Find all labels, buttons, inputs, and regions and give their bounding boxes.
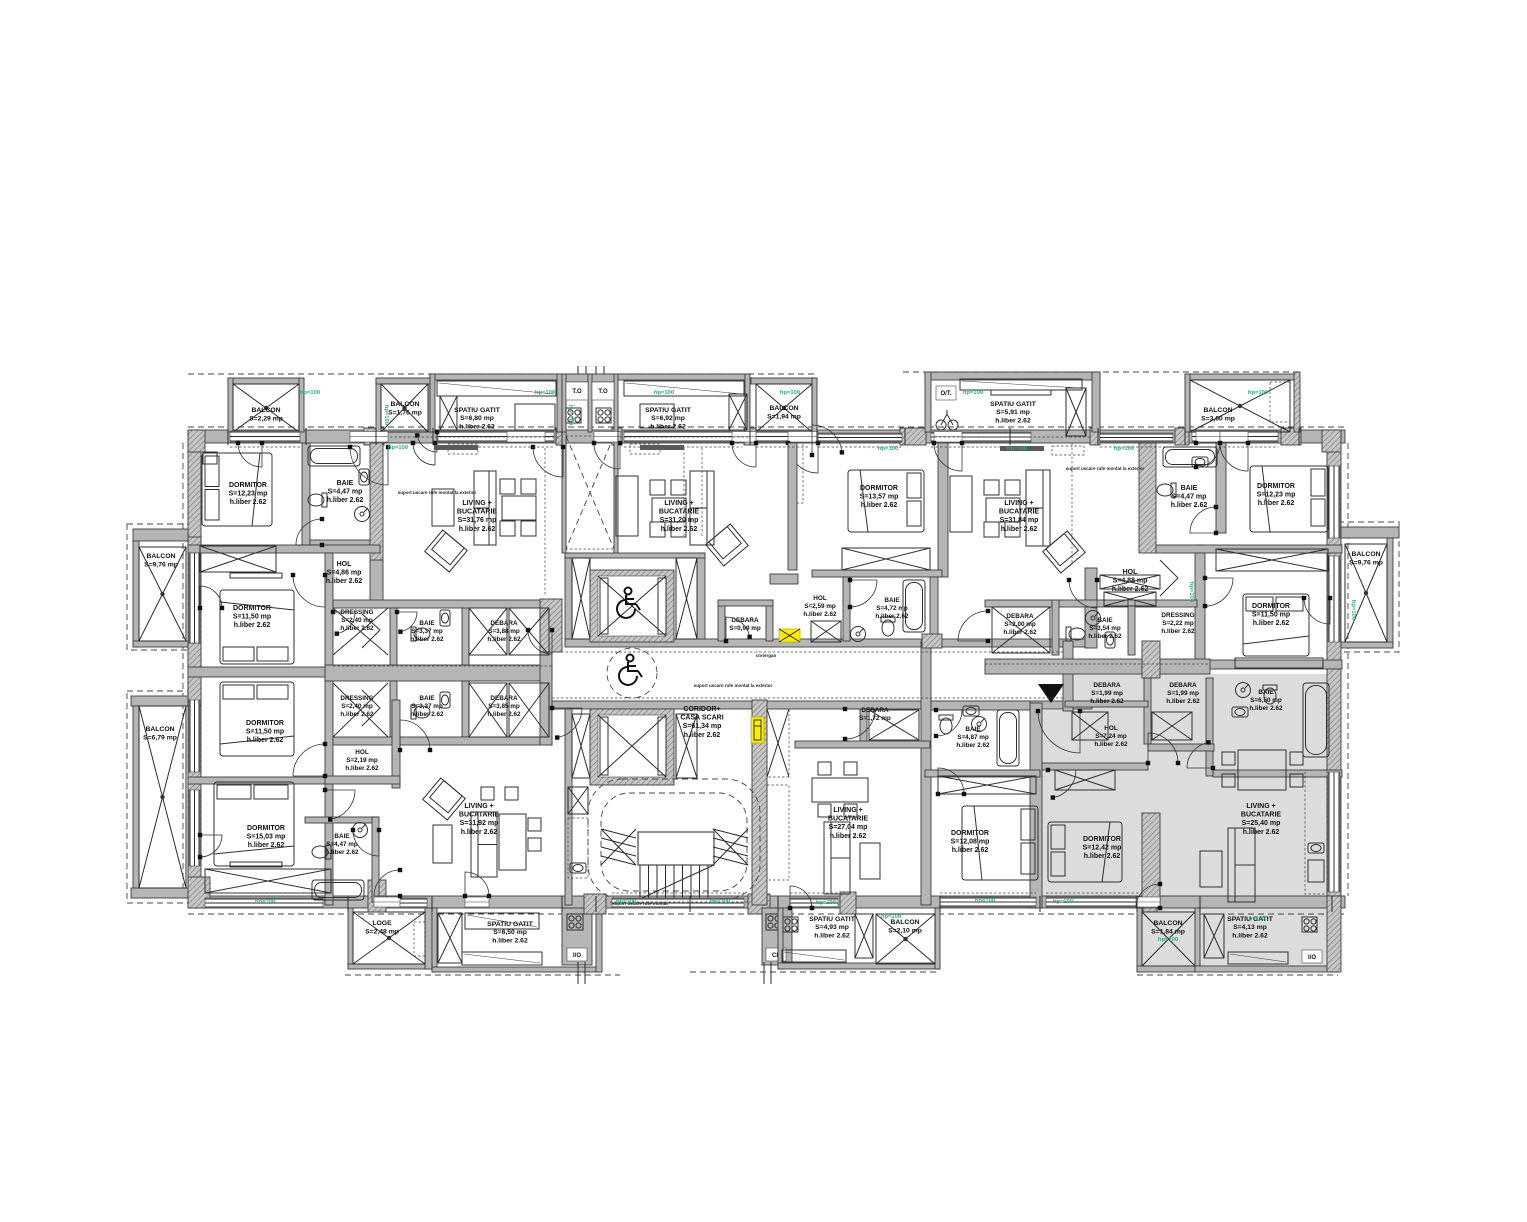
svg-text:suport uscare rufe montat la e: suport uscare rufe montat la exterior <box>694 683 773 688</box>
svg-text:DORMITORS=12,23 mph.liber 2.62: DORMITORS=12,23 mph.liber 2.62 <box>1257 483 1296 507</box>
svg-text:BALCONS=6,79 mp: BALCONS=6,79 mp <box>143 726 177 741</box>
svg-text:hp=100: hp=100 <box>780 390 800 396</box>
svg-text:hp=100: hp=100 <box>383 405 389 425</box>
svg-text:hp=100: hp=100 <box>881 914 901 920</box>
svg-text:SPATIU GATITS=4,93 mph.liber 2: SPATIU GATITS=4,93 mph.liber 2.62 <box>809 916 856 939</box>
svg-text:hp=100: hp=100 <box>255 899 275 905</box>
svg-text:DORMITORS=13,57 mph.liber 2.62: DORMITORS=13,57 mph.liber 2.62 <box>860 485 899 509</box>
svg-text:DEBARAS=3,85 mph.liber 2.62: DEBARAS=3,85 mph.liber 2.62 <box>487 695 521 718</box>
svg-text:hp=100: hp=100 <box>616 899 636 905</box>
svg-text:DEBARAS=1,99 mph.liber 2.62: DEBARAS=1,99 mph.liber 2.62 <box>1090 682 1124 705</box>
svg-text:SPATIU GATITS=6,80 mph.liber 2: SPATIU GATITS=6,80 mph.liber 2.62 <box>454 407 501 430</box>
svg-text:hp=100: hp=100 <box>1350 600 1356 620</box>
svg-text:hp=100: hp=100 <box>975 898 995 904</box>
svg-text:DEBARAS=1,99 mph.liber 2.62: DEBARAS=1,99 mph.liber 2.62 <box>1166 682 1200 705</box>
svg-text:hp=100: hp=100 <box>1188 582 1194 602</box>
svg-text:LIVING +BUCATARIES=25,40 mph.l: LIVING +BUCATARIES=25,40 mph.liber 2.62 <box>1241 803 1282 836</box>
svg-text:hp=100: hp=100 <box>1158 937 1178 943</box>
svg-text:hp=100: hp=100 <box>1007 446 1027 452</box>
svg-text:hp=100: hp=100 <box>816 900 836 906</box>
svg-text:suport uscare rufe montat la e: suport uscare rufe montat la exterior <box>1066 466 1145 471</box>
svg-text:hp=100: hp=100 <box>654 390 674 396</box>
svg-text:DORMITORS=12,23 mph.liber 2.62: DORMITORS=12,23 mph.liber 2.62 <box>229 482 268 506</box>
svg-text:SPATIU GATITS=5,91 mph.liber 2: SPATIU GATITS=5,91 mph.liber 2.62 <box>990 401 1037 424</box>
svg-text:suport uscare rufe montat la e: suport uscare rufe montat la exterior <box>398 490 477 495</box>
svg-text:DEBARAS=0,99 mp: DEBARAS=0,99 mp <box>729 617 761 632</box>
svg-text:hp=100: hp=100 <box>567 405 573 425</box>
svg-text:DORMITORS=11,50 mph.liber 2.62: DORMITORS=11,50 mph.liber 2.62 <box>233 605 271 629</box>
svg-text:SPATIU GATITS=6,50 mph.liber 2: SPATIU GATITS=6,50 mph.liber 2.62 <box>487 921 534 944</box>
svg-text:BALCONS=9,76 mp: BALCONS=9,76 mp <box>1349 551 1383 566</box>
svg-text:DORMITORS=12,08 mph.liber 2.62: DORMITORS=12,08 mph.liber 2.62 <box>951 830 990 854</box>
svg-text:hp=100: hp=100 <box>535 390 555 396</box>
svg-text:DEBARAS=2,00 mph.liber 2.62: DEBARAS=2,00 mph.liber 2.62 <box>1003 613 1037 636</box>
svg-text:hp=100: hp=100 <box>300 390 320 396</box>
svg-text:T.O: T.O <box>598 389 608 395</box>
svg-text:hp=100: hp=100 <box>1245 916 1265 922</box>
svg-text:LIVING +BUCATARIES=27,04 mph.l: LIVING +BUCATARIES=27,04 mph.liber 2.62 <box>828 807 869 840</box>
svg-text:BALCONS=2,29 mp: BALCONS=2,29 mp <box>249 407 283 422</box>
svg-text:I/O: I/O <box>1308 955 1316 961</box>
svg-text:DRESSINGS=2,22 mph.liber 2.62: DRESSINGS=2,22 mph.liber 2.62 <box>1161 612 1195 635</box>
svg-text:coriergan: coriergan <box>756 653 777 658</box>
svg-text:hp=100: hp=100 <box>1114 446 1134 452</box>
svg-text:DORMITORS=15,03 mph.liber 2.62: DORMITORS=15,03 mph.liber 2.62 <box>247 825 286 849</box>
svg-text:O/T.: O/T. <box>940 391 951 397</box>
svg-text:BALCONS=9,76 mp: BALCONS=9,76 mp <box>144 553 178 568</box>
svg-text:hp=100: hp=100 <box>878 446 898 452</box>
svg-text:BALCONS=3,60 mp: BALCONS=3,60 mp <box>1201 407 1235 422</box>
svg-text:BALCONS=2,10 mp: BALCONS=2,10 mp <box>888 919 922 934</box>
svg-text:BALCONS=1,84 mp: BALCONS=1,84 mp <box>1151 920 1185 935</box>
svg-text:DORMITORS=11,50 mph.liber 2.62: DORMITORS=11,50 mph.liber 2.62 <box>1252 603 1290 627</box>
svg-text:hp=100: hp=100 <box>710 899 730 905</box>
svg-text:hp=100: hp=100 <box>963 390 983 396</box>
svg-text:DORMITORS=12,42 mph.liber 2.62: DORMITORS=12,42 mph.liber 2.62 <box>1083 836 1122 860</box>
svg-text:hp=100: hp=100 <box>388 445 408 451</box>
svg-text:hp=100: hp=100 <box>1053 899 1073 905</box>
svg-text:LIVING +BUCATARIES=31,92 mph.l: LIVING +BUCATARIES=31,92 mph.liber 2.62 <box>459 803 500 836</box>
svg-text:LIVING +BUCATARIES=31,76 mph.l: LIVING +BUCATARIES=31,76 mph.liber 2.62 <box>457 500 498 533</box>
svg-text:hp=100: hp=100 <box>1248 390 1268 396</box>
svg-text:BALCONS=1,76 mp: BALCONS=1,76 mp <box>388 401 422 416</box>
svg-text:BALCONS=1,94 mp: BALCONS=1,94 mp <box>767 405 801 420</box>
svg-text:SPATIU GATITS=6,92 mph.liber 2: SPATIU GATITS=6,92 mph.liber 2.62 <box>645 407 692 430</box>
svg-text:CORIDOR+CASA SCARIS=61,34 mph.: CORIDOR+CASA SCARIS=61,34 mph.liber 2.62 <box>680 706 723 739</box>
svg-text:I/O: I/O <box>573 953 581 959</box>
svg-text:T.O: T.O <box>572 389 582 395</box>
svg-text:DEBARAS=3,88 mph.liber 2.62: DEBARAS=3,88 mph.liber 2.62 <box>487 620 521 643</box>
